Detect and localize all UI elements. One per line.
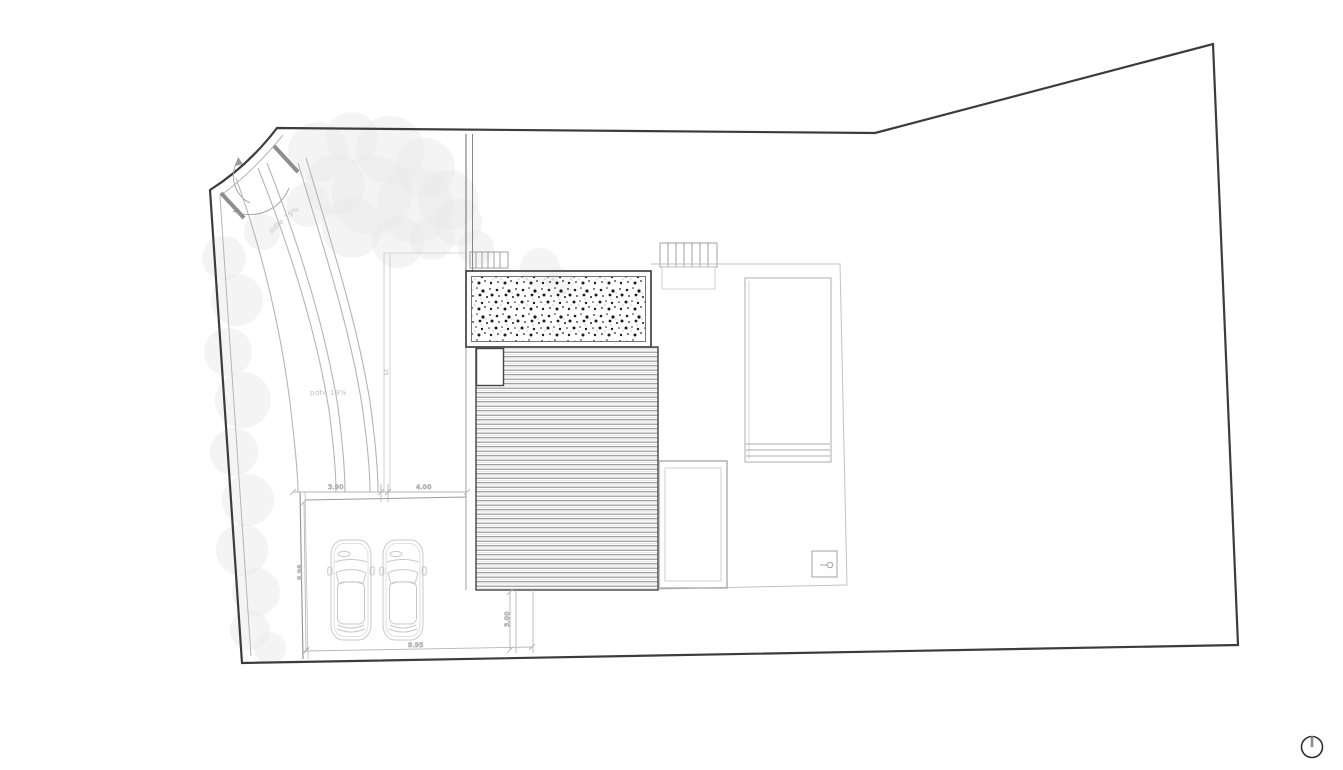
wood-deck (476, 347, 658, 590)
tree-canopy (286, 183, 330, 227)
tree-canopy (204, 328, 252, 376)
boundary-fence-corner (220, 135, 283, 196)
terrace (651, 264, 847, 589)
car (380, 540, 426, 640)
edge-detail-dimension: 25 (382, 369, 388, 376)
dimension-rear-path: 3.00 (503, 611, 511, 627)
dimension-parking-left: 3.90 (328, 483, 344, 491)
dimension-parking-right: 4.00 (416, 483, 432, 491)
pool (745, 278, 831, 462)
courtyard (659, 461, 727, 588)
parking-north-wall (305, 497, 466, 500)
tree-canopy (254, 632, 286, 664)
equipment-pad (812, 551, 837, 577)
site-plan-drawing: pdte 19% pdte 19% 25 (0, 0, 1343, 770)
gate-leaf (221, 193, 244, 218)
tree-canopy (210, 428, 258, 476)
tree-canopy (216, 524, 268, 576)
dimension-parking-depth: 8.98 (296, 564, 304, 580)
north-arrow-icon (1302, 737, 1323, 758)
car (328, 540, 374, 640)
dimension-parking-total: 9.95 (408, 641, 424, 649)
site-plan-canvas: pdte 19% pdte 19% 25 (0, 0, 1343, 770)
stairs-northeast (660, 243, 717, 289)
deck-room (477, 349, 504, 386)
building (466, 134, 717, 590)
slope-label-lower: pdte 19% (310, 389, 347, 397)
gravel-roof (466, 271, 651, 347)
